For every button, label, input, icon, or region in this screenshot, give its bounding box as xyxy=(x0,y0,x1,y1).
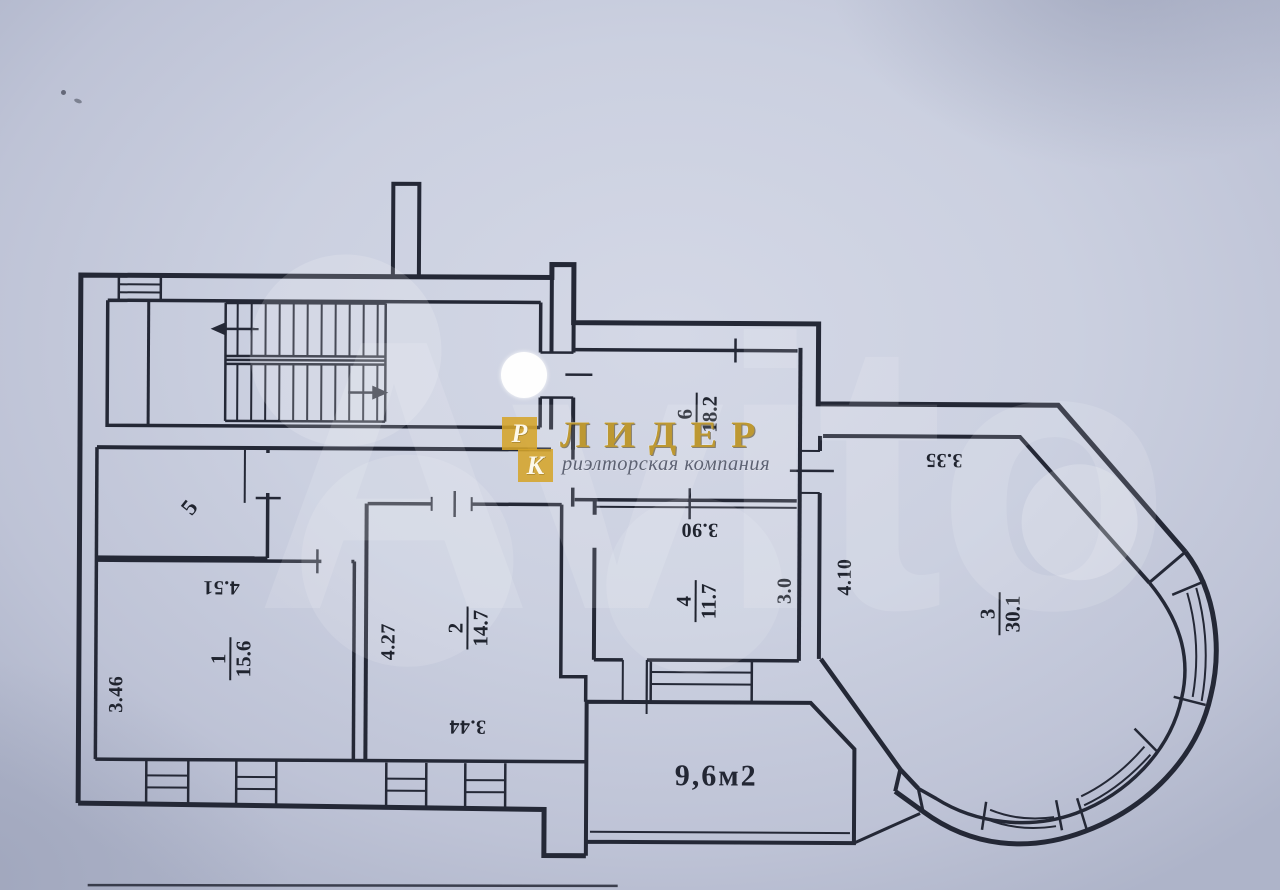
logo-mark-bottom-square: К xyxy=(518,449,553,482)
room-label-4: 4 11.7 xyxy=(673,580,720,622)
dimension-value: 3.35 xyxy=(925,449,962,471)
dim-room2-depth: 4.27 xyxy=(377,623,400,660)
dimension-value: 4.10 xyxy=(834,559,856,596)
room-area: 15.6 xyxy=(229,637,254,680)
room-number: 2 xyxy=(444,623,466,634)
dimension-value: 3.44 xyxy=(449,716,486,738)
logo-letter-r: Р xyxy=(512,419,528,449)
room-label-2: 2 14.7 xyxy=(444,607,491,650)
room-area: 14.7 xyxy=(466,607,491,650)
room-number: 1 xyxy=(207,653,229,664)
logo-subtitle: риэлторская компания xyxy=(562,453,770,476)
logo-letter-k: К xyxy=(527,451,545,481)
room-number: 3 xyxy=(977,609,999,620)
logo-title: ЛИДЕР xyxy=(560,418,828,454)
realtor-logo: Р К ЛИДЕР риэлторская компания xyxy=(498,412,828,487)
dim-room1-depth: 3.46 xyxy=(105,676,128,713)
paper-speck xyxy=(61,90,66,95)
dimension-value: 4.51 xyxy=(203,576,240,598)
dimension-value: 3.90 xyxy=(681,519,718,541)
balcony-area-value: 9,6м2 xyxy=(675,759,758,792)
dim-room4-depth: 3.0 xyxy=(774,577,797,604)
scanned-floor-plan-page: 6 18.2 5 4.51 1 15.6 3.46 4.27 2 14.7 3.… xyxy=(0,0,1280,890)
dim-room2-width: 3.44 xyxy=(449,715,486,738)
room-area: 30.1 xyxy=(999,593,1024,636)
dimension-value: 3.0 xyxy=(774,577,796,604)
dim-room3-depth: 4.10 xyxy=(834,559,857,596)
logo-title-text: ЛИДЕР xyxy=(560,418,770,454)
room-area: 11.7 xyxy=(695,580,720,622)
room-label-3: 3 30.1 xyxy=(976,592,1023,635)
dimension-value: 3.46 xyxy=(105,676,127,713)
dimension-value: 4.27 xyxy=(377,623,399,660)
white-sticker-circle xyxy=(501,352,547,398)
dim-room3-width: 3.35 xyxy=(925,448,962,471)
dim-room1-width: 4.51 xyxy=(203,575,240,598)
logo-mark-top-square: Р xyxy=(502,417,537,450)
balcony-area-label: 9,6м2 xyxy=(675,759,758,793)
room-label-1: 1 15.6 xyxy=(207,637,254,680)
room-number: 4 xyxy=(673,596,695,607)
dim-room4-width: 3.90 xyxy=(681,518,718,541)
